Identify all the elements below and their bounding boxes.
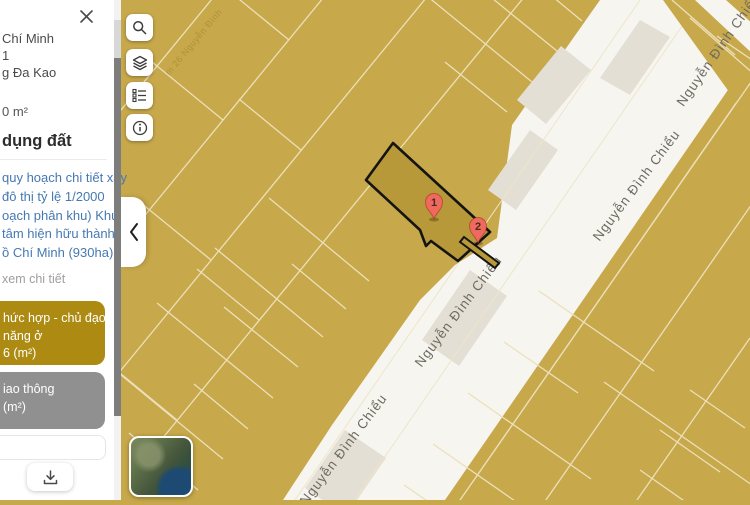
zone-card-area: 6 (m²) bbox=[3, 345, 105, 363]
zone-card-line: iao thông bbox=[3, 381, 105, 399]
legend-list-icon bbox=[132, 88, 147, 103]
view-detail-hint: xem chi tiết bbox=[2, 272, 65, 286]
sidebar-scrollbar-track[interactable] bbox=[114, 0, 121, 500]
info-icon bbox=[132, 120, 148, 136]
plan-link-line: ồ Chí Minh (930ha) bbox=[2, 244, 127, 263]
chevron-left-icon bbox=[126, 220, 142, 244]
zone-card-line: hức hợp - chủ đạo bbox=[3, 310, 105, 328]
zone-card-area: (m²) bbox=[3, 399, 105, 417]
close-panel-button[interactable] bbox=[74, 4, 98, 28]
location-line-ward: g Đa Kao bbox=[2, 65, 56, 80]
search-icon bbox=[132, 20, 147, 35]
zone-card-mixed-use[interactable]: hức hợp - chủ đạo năng ở 6 (m²) bbox=[0, 301, 105, 365]
zone-card-line: năng ở bbox=[3, 328, 105, 346]
map-svg: m 26 Nguyễn Đình Nguyễn Đình Chiểu Nguyễ… bbox=[121, 0, 750, 500]
section-title-land-use: dụng đất bbox=[2, 132, 72, 151]
layers-icon bbox=[132, 55, 148, 71]
basemap-satellite-thumbnail[interactable] bbox=[129, 436, 193, 497]
marker-number: 2 bbox=[475, 221, 481, 233]
info-panel: Chí Minh 1 g Đa Kao 0 m² dụng đất quy ho… bbox=[0, 0, 121, 500]
download-button[interactable] bbox=[27, 463, 73, 491]
legend-list-button[interactable] bbox=[126, 82, 153, 109]
marker-number: 1 bbox=[431, 197, 437, 209]
zone-card-empty[interactable] bbox=[0, 435, 106, 460]
close-icon bbox=[79, 9, 94, 24]
location-line-district: 1 bbox=[2, 48, 9, 63]
zone-card-traffic[interactable]: iao thông (m²) bbox=[0, 372, 105, 429]
sidebar-scrollbar-segment bbox=[114, 20, 121, 58]
sidebar-scrollbar-thumb[interactable] bbox=[114, 58, 121, 416]
planning-document-link[interactable]: quy hoạch chi tiết xây đô thị tỷ lệ 1/20… bbox=[2, 169, 127, 263]
map-canvas[interactable]: m 26 Nguyễn Đình Nguyễn Đình Chiểu Nguyễ… bbox=[121, 0, 750, 500]
location-line-city: Chí Minh bbox=[2, 31, 54, 46]
plan-link-line: đô thị tỷ lệ 1/2000 bbox=[2, 188, 127, 207]
plan-link-line: tâm hiện hữu thành bbox=[2, 225, 127, 244]
search-button[interactable] bbox=[126, 14, 153, 41]
download-icon bbox=[42, 469, 59, 486]
plan-link-line: quy hoạch chi tiết xây bbox=[2, 169, 127, 188]
section-divider bbox=[0, 159, 107, 160]
layers-button[interactable] bbox=[126, 49, 153, 76]
info-button[interactable] bbox=[126, 114, 153, 141]
parcel-area-value: 0 m² bbox=[2, 104, 28, 119]
plan-link-line: oạch phân khu) Khu bbox=[2, 207, 127, 226]
